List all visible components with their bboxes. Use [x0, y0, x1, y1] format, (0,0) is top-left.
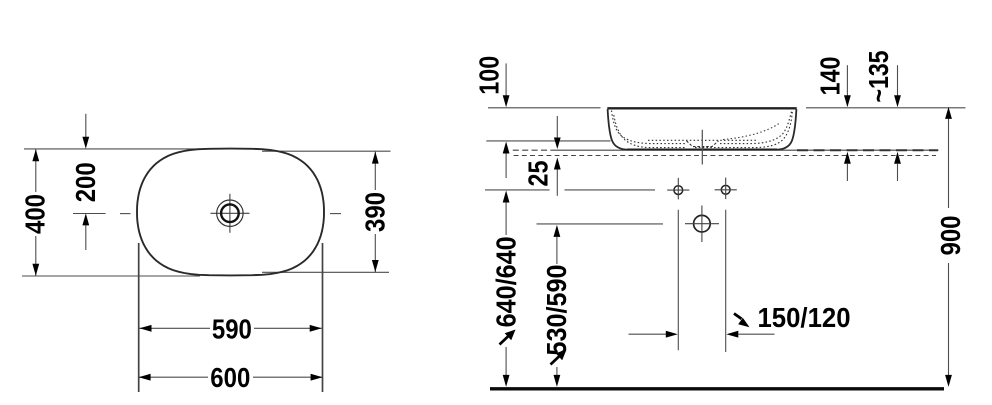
svg-text:140: 140 — [815, 57, 846, 96]
svg-text:~135: ~135 — [863, 51, 894, 103]
svg-text:25: 25 — [523, 161, 554, 187]
svg-text:390: 390 — [360, 192, 391, 232]
svg-text:640/640: 640/640 — [491, 236, 522, 327]
svg-text:530/590: 530/590 — [541, 265, 572, 356]
svg-text:100: 100 — [474, 56, 505, 95]
svg-text:200: 200 — [70, 162, 101, 202]
svg-text:900: 900 — [935, 216, 966, 256]
svg-text:590: 590 — [212, 313, 252, 344]
svg-text:400: 400 — [19, 194, 50, 234]
svg-text:600: 600 — [210, 362, 250, 393]
svg-text:150/120: 150/120 — [758, 302, 851, 333]
